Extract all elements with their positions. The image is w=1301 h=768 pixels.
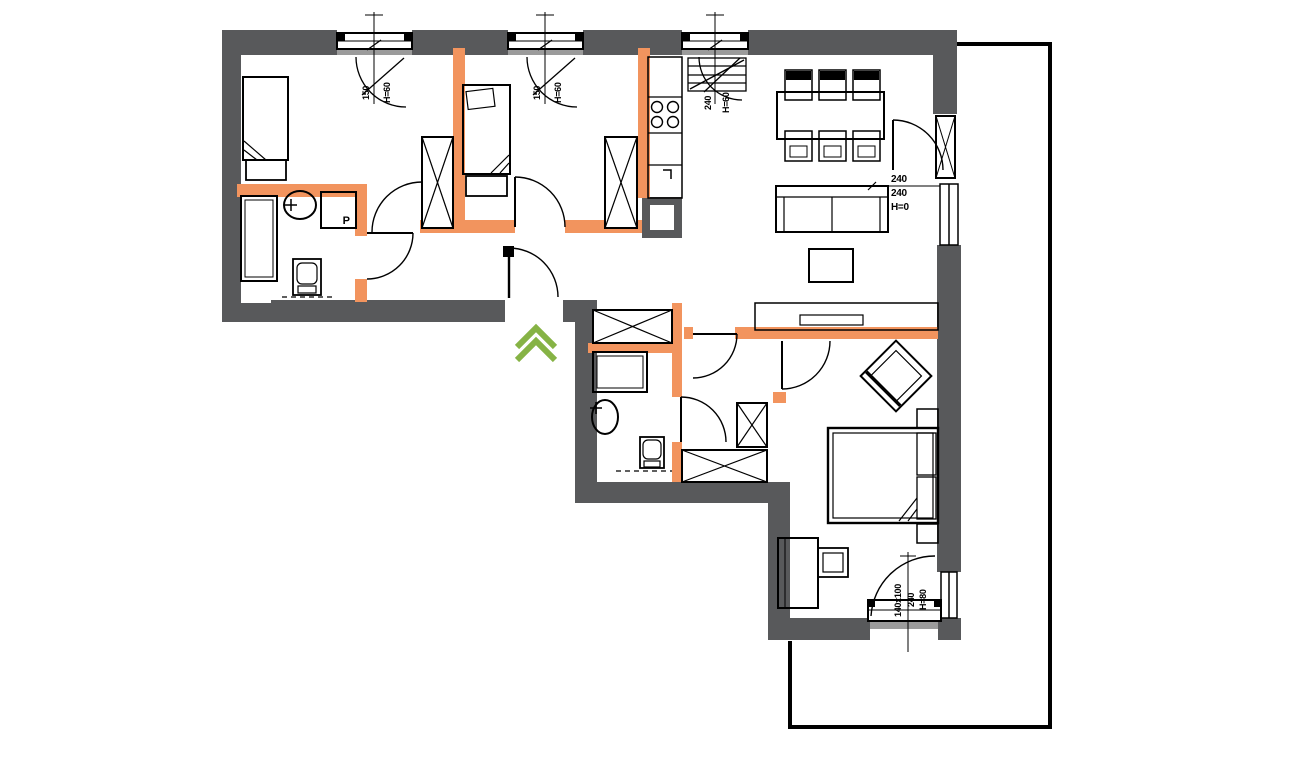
shower-middle (593, 352, 647, 392)
window-kitchen-sill-label: H=60 (721, 92, 731, 113)
floor-plan-drawing: 150 H=60 150 H=60 240 H=60 240 240 H=0 1… (0, 0, 1301, 768)
bed-double (828, 428, 938, 523)
balcony-door (864, 114, 958, 190)
wall-top (222, 30, 957, 55)
toilet-left (293, 259, 321, 295)
bedroom-a-furniture (243, 77, 288, 180)
fixed-glazing-right (940, 184, 958, 245)
wall-bottom-left-a (222, 300, 505, 322)
partition-bathL-right-b (355, 279, 367, 302)
door-entrance (503, 246, 558, 298)
bed-single-a (243, 77, 288, 160)
sofa (776, 186, 888, 232)
bed-a-footboard (246, 160, 286, 180)
toilet-middle (640, 437, 664, 468)
window-b-sill-label: H=60 (553, 82, 563, 103)
partition-bathM-right-b (672, 442, 682, 482)
bedroom-window-size-label: 140x100 (893, 584, 903, 617)
tv-sideboard (755, 303, 938, 330)
kitchen (648, 57, 682, 198)
wall-left (222, 30, 241, 322)
door-bathroom-middle (681, 397, 726, 442)
window-a-sill-label: H=60 (382, 82, 392, 103)
living-dining-furniture (755, 70, 938, 330)
wall-right-top (933, 30, 957, 118)
wardrobe-bedroom-b (605, 137, 637, 228)
radiator (688, 58, 746, 91)
window-kitchen-width-label: 240 (703, 96, 713, 110)
bedroom-c-furniture (778, 341, 938, 608)
bedroom-window-sill-label: H=80 (918, 589, 928, 610)
bed-b-pillow (466, 88, 495, 109)
entrance-arrow-icon (517, 328, 555, 360)
wall-niche (241, 292, 271, 303)
kitchen-counter (648, 57, 682, 198)
window-a (337, 12, 412, 107)
partition-bathM-right-a (672, 303, 682, 397)
bedroom-b-furniture (463, 85, 510, 196)
armchair (861, 341, 932, 412)
shower-left (241, 196, 277, 281)
bedroom-window-height-label: 240 (906, 593, 916, 607)
bedroom-window (868, 552, 941, 652)
stove-burners (652, 102, 679, 128)
door-bedroom-b (515, 177, 565, 227)
bed-b-footboard (466, 176, 507, 196)
nightstand-1 (917, 409, 938, 428)
door-bedroom-a (372, 182, 422, 232)
door-living-room (693, 334, 737, 378)
partition-bedroomC-stub (773, 392, 786, 403)
washing-machine-label: P (343, 215, 350, 227)
balcony-door-height-label: 240 (891, 188, 908, 199)
bedroom-window-sill (870, 621, 938, 629)
door-bedroom-c (782, 341, 830, 389)
wardrobe-bedroom-a (422, 137, 453, 228)
window-a-width-label: 150 (361, 86, 371, 100)
kitchen-sink-faucet (663, 170, 671, 179)
bathroom-middle (590, 352, 672, 471)
coffee-table (809, 249, 853, 282)
window-b-width-label: 150 (532, 86, 542, 100)
nightstand-2 (917, 524, 938, 543)
wall-bedroomC-bottom-a (768, 618, 870, 640)
fixed-glazing-corner (941, 572, 957, 618)
bathroom-left (241, 191, 356, 297)
washing-machine (321, 192, 356, 228)
dining-chairs-bottom (785, 131, 880, 161)
dining-chairs-top (785, 70, 880, 100)
desk-chair (818, 548, 848, 577)
wall-right-mid (937, 245, 961, 572)
wall-mid-bottom (575, 482, 790, 503)
wardrobe-hallway-east (737, 403, 767, 447)
shaft-inner (650, 205, 674, 230)
door-bathroom-left (367, 233, 413, 279)
partition-living-stub (684, 327, 693, 339)
partition-living-bedroomC (735, 327, 938, 339)
tv (800, 315, 863, 325)
floor-plan: 150 H=60 150 H=60 240 H=60 240 240 H=0 1… (0, 0, 1301, 768)
wardrobe-hallway-south (682, 450, 767, 482)
window-b (508, 12, 583, 107)
wardrobe-corridor (593, 310, 672, 343)
dining-table (777, 92, 884, 139)
balcony-door-sill-label: H=0 (891, 202, 909, 213)
balcony-door-width-label: 240 (891, 174, 908, 185)
